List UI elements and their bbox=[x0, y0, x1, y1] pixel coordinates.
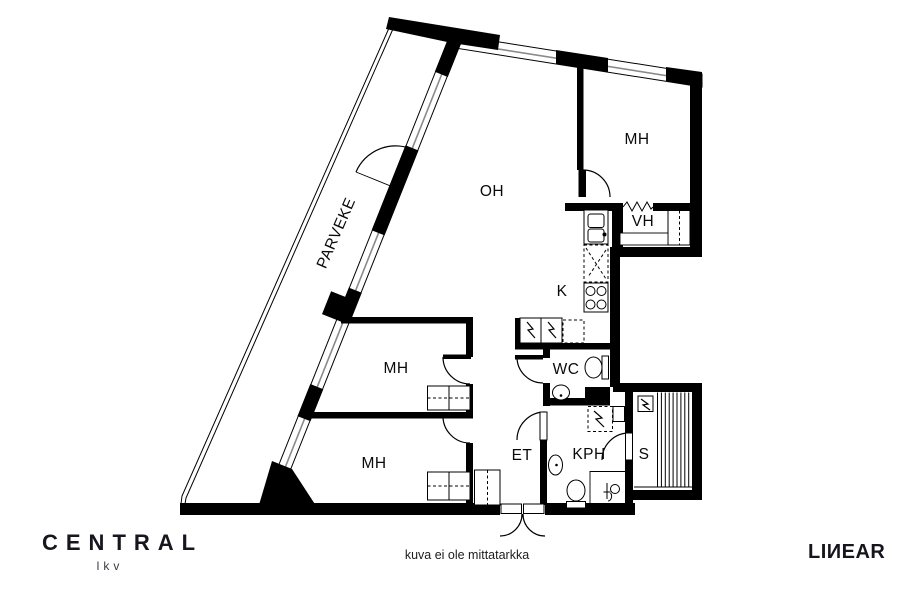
water-heater bbox=[613, 407, 625, 422]
sink-icon bbox=[584, 210, 608, 244]
sauna-fixtures bbox=[634, 393, 693, 488]
washbasin-icon bbox=[553, 385, 570, 400]
agency-logo: CENTRAL lkv bbox=[34, 530, 182, 573]
wardrobe-vh bbox=[620, 211, 690, 246]
label-k: K bbox=[557, 283, 568, 300]
wardrobe-mh2 bbox=[428, 386, 471, 410]
label-et: ET bbox=[512, 447, 533, 464]
kitchen-fixtures bbox=[520, 210, 608, 343]
sauna-stove-icon bbox=[638, 396, 653, 412]
window-bands bbox=[266, 35, 702, 501]
label-vh: VH bbox=[632, 213, 655, 230]
washbasin-icon-2 bbox=[549, 455, 563, 475]
counter-corner bbox=[563, 320, 584, 343]
label-wc: WC bbox=[553, 361, 580, 378]
vendor-logo: LIИEAR bbox=[808, 541, 885, 564]
vh-opening-zigzag bbox=[623, 202, 653, 211]
agency-subtitle: lkv bbox=[34, 559, 182, 573]
label-oh: OH bbox=[480, 183, 504, 200]
dishwasher-icon bbox=[584, 245, 608, 282]
label-kph: KPH bbox=[572, 446, 605, 463]
floor-plan: PARVEKE OH MH VH K WC MH MH ET KPH S bbox=[0, 0, 900, 600]
shower-icon bbox=[590, 472, 628, 506]
stove-icon bbox=[584, 283, 608, 312]
label-mh-3: MH bbox=[361, 455, 386, 472]
closet-et bbox=[475, 470, 501, 505]
agency-name: CENTRAL bbox=[34, 530, 182, 556]
washing-machine-bolt bbox=[594, 411, 604, 427]
label-parveke: PARVEKE bbox=[314, 195, 360, 271]
washing-machine-icon bbox=[588, 407, 613, 432]
disclaimer-text: kuva ei ole mittatarkka bbox=[350, 548, 584, 562]
label-mh-1: MH bbox=[624, 131, 649, 148]
label-s: S bbox=[639, 446, 650, 463]
fridge-icon bbox=[520, 318, 541, 343]
label-mh-2: MH bbox=[383, 360, 408, 377]
toilet-icon-2 bbox=[567, 480, 586, 508]
wardrobe-mh3 bbox=[428, 472, 471, 500]
toilet-icon bbox=[585, 356, 609, 379]
freezer-icon bbox=[541, 318, 562, 343]
